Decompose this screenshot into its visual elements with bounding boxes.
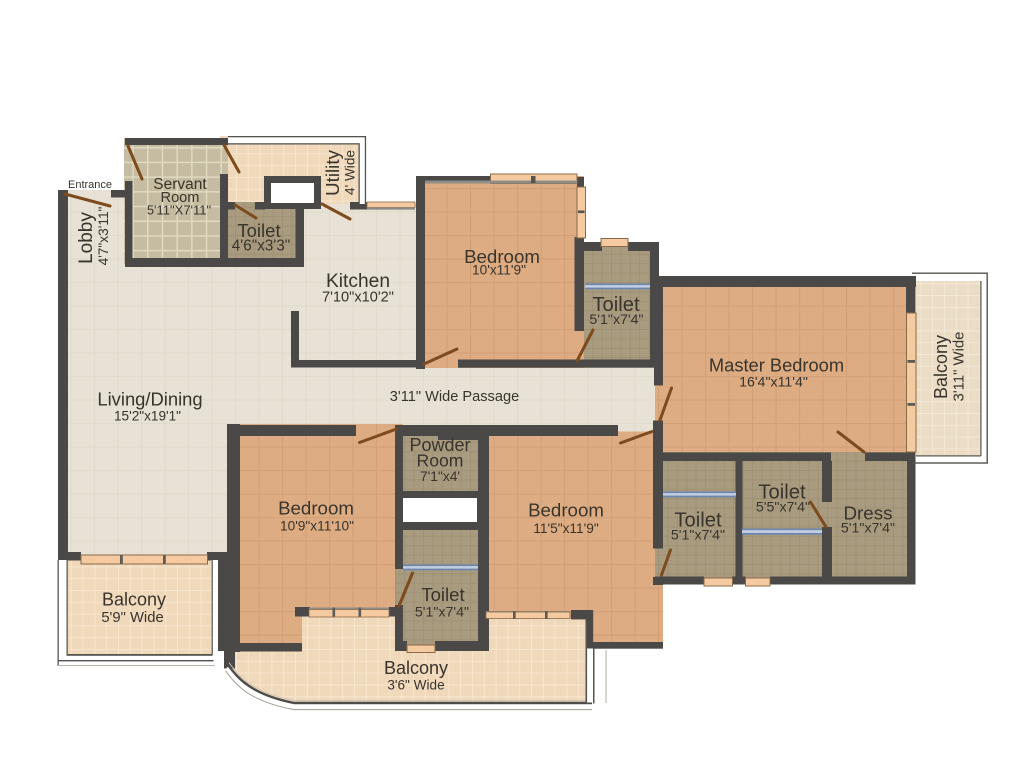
svg-text:Bedroom: Bedroom [528, 500, 604, 521]
svg-text:4' Wide: 4' Wide [343, 150, 358, 195]
svg-text:5'11"X7'11": 5'11"X7'11" [147, 203, 212, 218]
svg-text:7'1"x4': 7'1"x4' [420, 469, 460, 484]
svg-text:Bedroom: Bedroom [278, 498, 354, 519]
svg-text:Balcony: Balcony [102, 590, 166, 610]
svg-text:Entrance: Entrance [68, 179, 112, 191]
svg-text:Lobby: Lobby [76, 212, 97, 264]
svg-text:7'10"x10'2": 7'10"x10'2" [322, 290, 394, 306]
svg-text:Utility: Utility [322, 149, 343, 196]
svg-text:Toilet: Toilet [421, 584, 464, 605]
svg-text:4'6"x3'3": 4'6"x3'3" [232, 238, 290, 255]
svg-text:5'1"x7'4": 5'1"x7'4" [415, 605, 469, 621]
svg-text:Balcony: Balcony [931, 335, 951, 399]
svg-text:11'5"x11'9": 11'5"x11'9" [533, 521, 599, 536]
svg-text:16'4"x11'4": 16'4"x11'4" [739, 375, 808, 391]
svg-text:5'1"x7'4": 5'1"x7'4" [841, 521, 895, 537]
svg-text:5'5"x7'4": 5'5"x7'4" [756, 500, 810, 516]
svg-text:5'1"x7'4": 5'1"x7'4" [671, 528, 725, 544]
svg-text:3'11" Wide: 3'11" Wide [952, 332, 968, 402]
svg-text:15'2"x19'1": 15'2"x19'1" [114, 409, 181, 424]
svg-text:4'7"x3'11": 4'7"x3'11" [96, 206, 111, 265]
svg-text:3'11" Wide Passage: 3'11" Wide Passage [390, 389, 519, 405]
svg-text:10'9"x11'10": 10'9"x11'10" [280, 519, 354, 534]
svg-text:Master Bedroom: Master Bedroom [709, 355, 844, 376]
svg-text:Balcony: Balcony [384, 658, 448, 678]
svg-text:5'1"x7'4": 5'1"x7'4" [589, 312, 643, 328]
svg-text:Room: Room [417, 451, 464, 471]
svg-text:3'6" Wide: 3'6" Wide [387, 678, 444, 693]
svg-text:5'9" Wide: 5'9" Wide [101, 610, 163, 626]
svg-text:10'x11'9": 10'x11'9" [472, 263, 526, 278]
svg-text:Living/Dining: Living/Dining [97, 389, 202, 410]
